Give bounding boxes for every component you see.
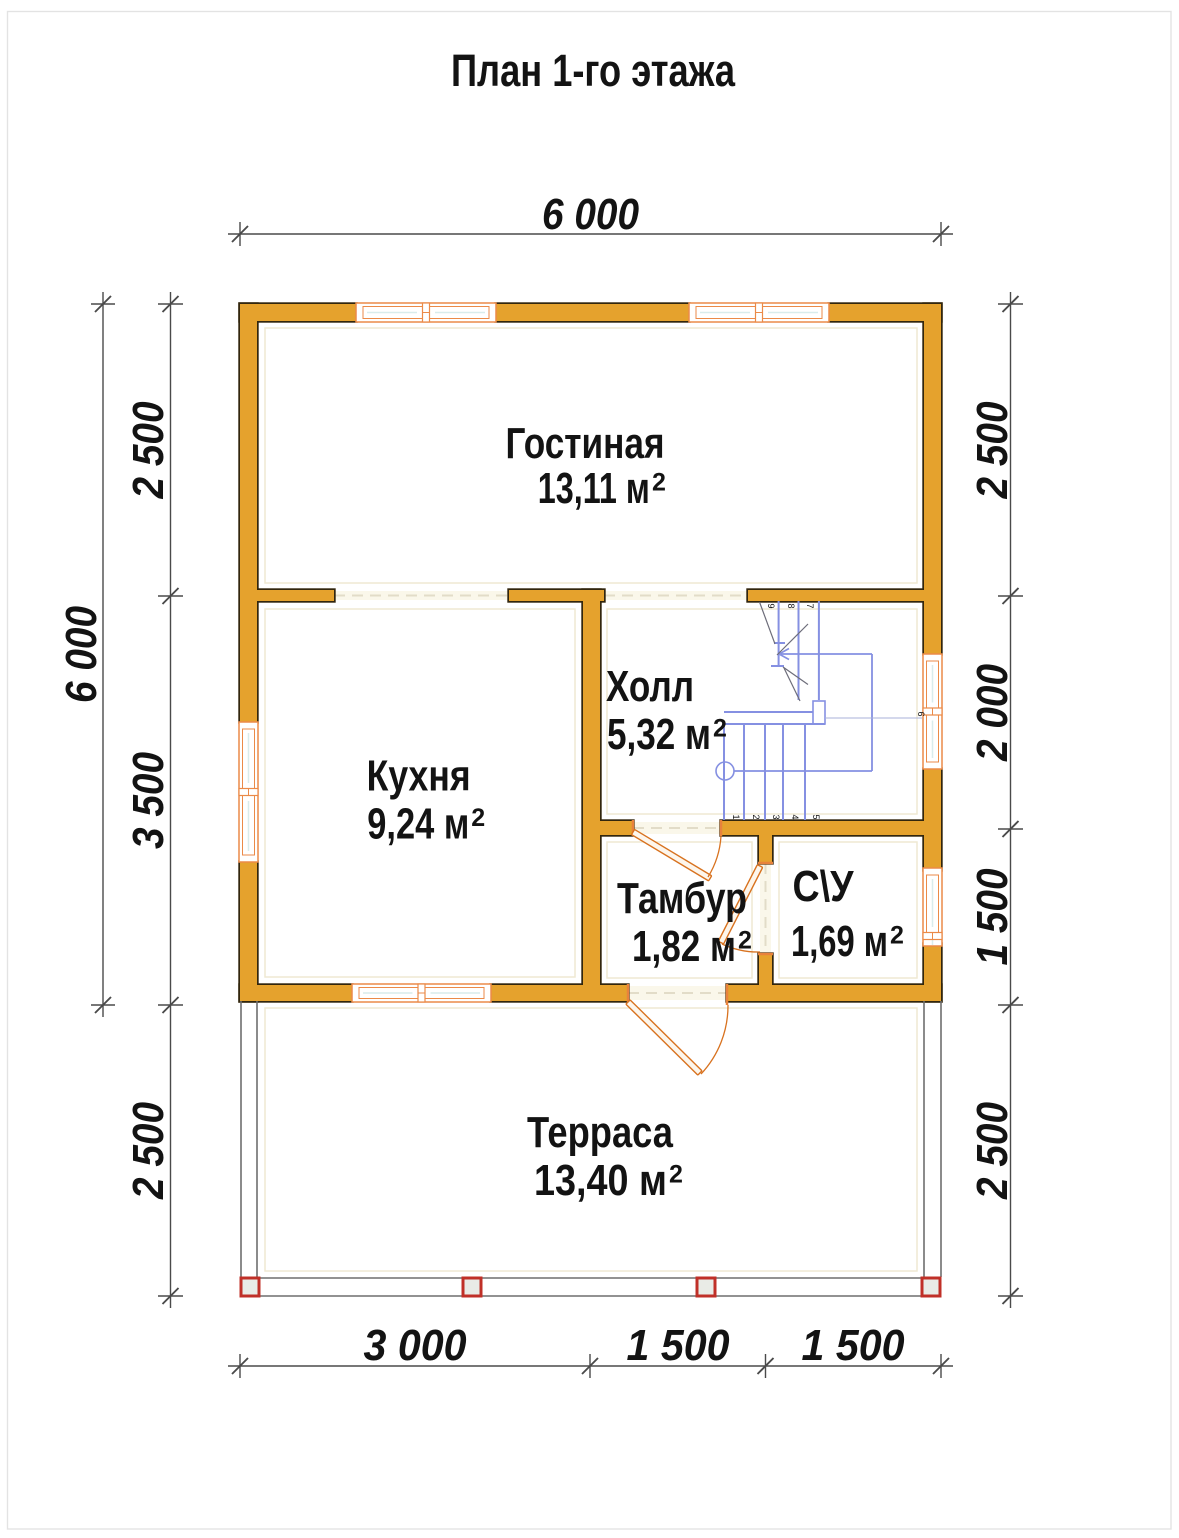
svg-text:2 500: 2 500 [124,401,173,499]
svg-text:9: 9 [766,603,776,608]
svg-text:9,24 м: 9,24 м [367,800,469,849]
svg-text:2: 2 [669,1161,683,1189]
svg-text:2: 2 [713,715,727,743]
svg-text:5: 5 [811,814,821,819]
svg-text:2: 2 [890,922,904,950]
svg-text:1 500: 1 500 [627,1321,730,1370]
svg-text:1: 1 [731,814,741,819]
svg-text:1,82 м: 1,82 м [632,922,736,971]
svg-text:План 1-го этажа: План 1-го этажа [451,45,736,96]
svg-text:Тамбур: Тамбур [617,874,747,923]
svg-text:4: 4 [790,814,800,819]
svg-text:Терраса: Терраса [527,1108,673,1157]
svg-text:3 500: 3 500 [124,752,173,849]
svg-text:С\У: С\У [793,862,855,911]
svg-text:Холл: Холл [606,662,694,711]
svg-text:Кухня: Кухня [367,752,471,801]
svg-text:8: 8 [786,603,796,608]
svg-text:2 000: 2 000 [968,664,1017,762]
svg-text:2: 2 [751,814,761,819]
svg-text:1,69 м: 1,69 м [791,917,888,966]
svg-text:2 500: 2 500 [124,1102,173,1200]
svg-text:6 000: 6 000 [57,606,106,703]
svg-text:3 000: 3 000 [364,1321,467,1370]
svg-text:2 500: 2 500 [968,401,1017,499]
svg-text:1 500: 1 500 [802,1321,905,1370]
svg-text:Гостиная: Гостиная [506,419,665,468]
svg-text:1 500: 1 500 [968,868,1017,965]
svg-text:5,32 м: 5,32 м [607,710,711,759]
svg-text:6: 6 [916,711,926,716]
svg-text:13,11 м: 13,11 м [538,464,650,513]
svg-text:2: 2 [738,927,752,955]
svg-text:2: 2 [471,804,485,832]
svg-text:2 500: 2 500 [968,1102,1017,1200]
svg-text:7: 7 [805,603,815,608]
svg-text:2: 2 [652,469,666,497]
svg-text:13,40 м: 13,40 м [534,1156,667,1205]
svg-text:6 000: 6 000 [542,190,639,239]
svg-text:3: 3 [771,814,781,819]
